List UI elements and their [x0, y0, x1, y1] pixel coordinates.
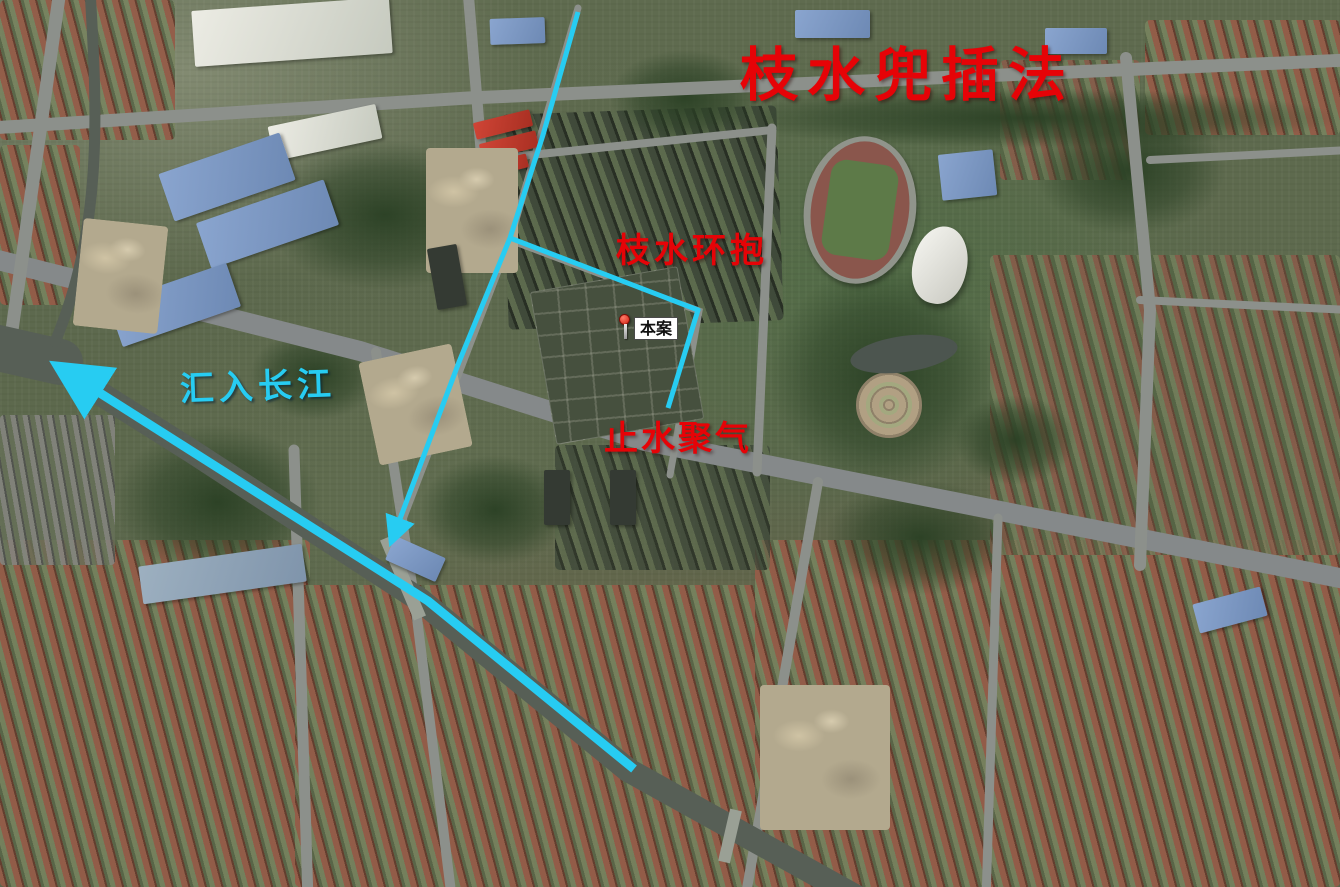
annotation-branch-embrace: 枝水环抱: [616, 234, 768, 268]
site-label: 本案: [634, 317, 678, 340]
river-flow-line: [62, 369, 634, 769]
annotation-method-title: 枝水兜插法: [740, 46, 1075, 104]
site-pin-stem: [624, 324, 627, 339]
annotation-join-yangtze: 汇入长江: [179, 367, 336, 406]
main-flow-line: [392, 12, 578, 540]
annotation-still-water: 止水聚气: [604, 422, 752, 456]
satellite-map: 枝水兜插法 枝水环抱 止水聚气 汇入长江 本案: [0, 0, 1340, 887]
